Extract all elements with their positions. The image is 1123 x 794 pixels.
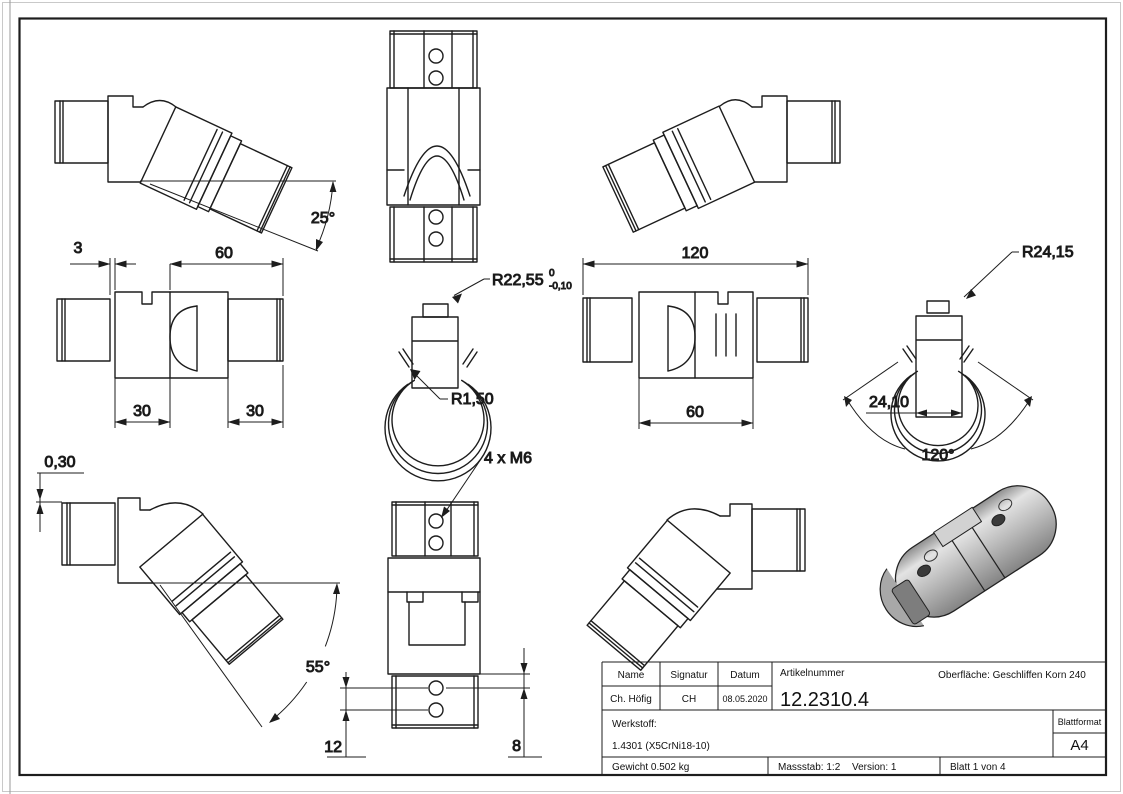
view-front-angle-25 — [55, 96, 294, 238]
dim-60-bottom: 60 — [639, 378, 753, 429]
titleblock-blatt: Blatt 1 von 4 — [950, 762, 1006, 773]
dim-label-030: 0,30 — [44, 454, 75, 471]
dim-label-r2255-tol-upper: 0 — [549, 268, 555, 279]
dim-4xm6-leader: 4 x M6 — [441, 450, 532, 518]
dim-label-r2255-tol-lower: -0,10 — [549, 281, 572, 292]
dim-label-4xm6: 4 x M6 — [484, 450, 532, 467]
titleblock-blattformat-label: Blattformat — [1058, 717, 1102, 727]
drawing-sheet: 25° 3 60 30 30 — [0, 0, 1123, 794]
view-back-straight — [583, 292, 808, 378]
dim-8: 8 — [446, 648, 542, 757]
titleblock-blattformat-value: A4 — [1070, 737, 1088, 754]
dim-label-r150: R1,50 — [451, 391, 494, 408]
dim-label-r2415: R24,15 — [1022, 244, 1074, 261]
dim-r2255-leader: R22,55 0 -0,10 — [452, 268, 572, 304]
dim-label-120deg: 120° — [921, 447, 954, 464]
titleblock-artikelnummer-label: Artikelnummer — [780, 668, 845, 679]
dim-r2415-leader: R24,15 — [964, 244, 1074, 299]
titleblock-signatur-value: CH — [682, 694, 696, 705]
dim-label-2410: 24,10 — [869, 394, 909, 411]
dim-label-3: 3 — [74, 240, 83, 257]
dim-label-8: 8 — [512, 738, 521, 755]
dim-2410: 24,10 — [866, 394, 962, 417]
titleblock-version: Version: 1 — [852, 762, 897, 773]
drawing-canvas: 25° 3 60 30 30 — [0, 0, 1123, 794]
dim-3-60: 3 60 — [70, 240, 283, 296]
view-back-angle-25 — [600, 96, 840, 238]
dim-label-30-right: 30 — [246, 403, 264, 420]
dim-label-12: 12 — [324, 739, 342, 756]
dim-label-60-top: 60 — [215, 245, 233, 262]
dim-30-30: 30 30 — [115, 365, 283, 428]
dim-label-25deg: 25° — [311, 210, 335, 227]
dim-label-55deg: 55° — [306, 659, 330, 676]
titleblock-datum-value: 08.05.2020 — [722, 694, 767, 704]
dim-label-30-left: 30 — [133, 403, 151, 420]
dim-label-60-bottom: 60 — [686, 404, 704, 421]
title-block: Name Signatur Datum Ch. Höfig CH 08.05.2… — [602, 662, 1106, 775]
titleblock-werkstoff-label: Werkstoff: — [612, 719, 657, 730]
titleblock-name-value: Ch. Höfig — [610, 694, 652, 705]
titleblock-oberflaeche: Oberfläche: Geschliffen Korn 240 — [938, 670, 1086, 681]
titleblock-werkstoff-value: 1.4301 (X5CrNi18-10) — [612, 741, 710, 752]
titleblock-artikelnummer-value: 12.2310.4 — [780, 689, 869, 711]
view-back-angle-55 — [583, 504, 805, 674]
dim-label-r2255: R22,55 — [492, 272, 544, 289]
dim-120: 120 — [583, 245, 808, 295]
view-bottom-vertical — [388, 502, 480, 728]
view-isometric-3d — [865, 471, 1070, 642]
titleblock-massstab: Massstab: 1:2 — [778, 762, 841, 773]
titleblock-gewicht: Gewicht 0.502 kg — [612, 762, 689, 773]
titleblock-name-label: Name — [618, 670, 645, 681]
dim-angle-55: 55° — [118, 583, 340, 727]
titleblock-signatur-label: Signatur — [670, 670, 708, 681]
view-top-vertical — [387, 31, 480, 262]
dim-030: 0,30 — [36, 454, 84, 532]
section-view-r2415 — [891, 301, 985, 461]
view-front-straight — [57, 292, 283, 378]
dim-angle-25: 25° — [140, 181, 336, 251]
dim-12: 12 — [324, 672, 428, 757]
titleblock-datum-label: Datum — [730, 670, 759, 681]
dim-label-120: 120 — [682, 245, 709, 262]
